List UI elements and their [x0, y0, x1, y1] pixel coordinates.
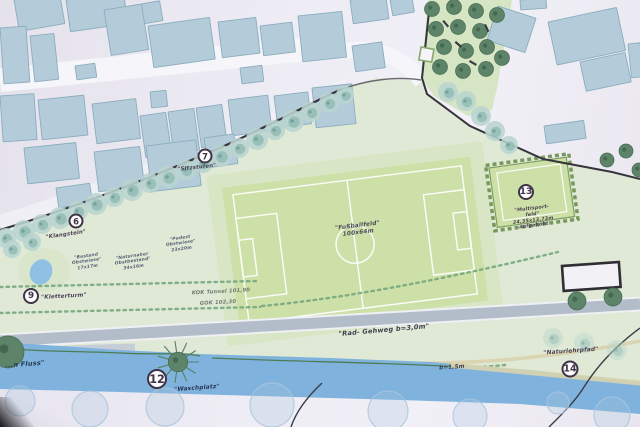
- label-kok-tunnel-line: KOK Tunnel 101,90: [192, 287, 251, 296]
- label-waschplatz: "Waschplatz": [174, 384, 220, 394]
- label-klangstein-line: "Klangstein": [45, 229, 86, 241]
- site-plan-photo: 679121314"Klangstein""Sitzstufen""Klette…: [0, 0, 640, 427]
- label-obstwiese-2: "NaturnaherObstbestand"34x16m: [114, 252, 152, 273]
- label-kletterturm: "Kletterturm": [41, 292, 87, 301]
- label-waschplatz-line: "Waschplatz": [174, 384, 220, 394]
- label-kletterturm-line: "Kletterturm": [41, 292, 87, 301]
- label-naturlehrpfad: "Naturlehrpfad": [543, 347, 599, 358]
- label-obstwiese-3: "PodestObstwiese"23x20m: [165, 234, 197, 254]
- marker-9: 9: [23, 288, 39, 304]
- label-gok: GOK 102,30: [200, 299, 237, 307]
- labels-overlay: 679121314"Klangstein""Sitzstufen""Klette…: [0, 0, 640, 427]
- marker-12: 12: [147, 369, 167, 389]
- marker-14: 14: [562, 361, 579, 378]
- label-fluss: ...n Fluss": [5, 360, 45, 371]
- label-kok-tunnel: KOK Tunnel 101,90: [192, 287, 251, 296]
- label-naturlehrpfad-line: "Naturlehrpfad": [543, 347, 599, 358]
- label-b15-line: b=1,5m: [439, 364, 465, 372]
- label-multisportfeld: "Multisport-feld"24,35x13,73maufgehöht: [511, 204, 554, 232]
- marker-13: 13: [518, 184, 534, 200]
- marker-7: 7: [198, 149, 213, 164]
- label-rad-gehweg: "Rad- Gehweg b=3,0m": [338, 323, 429, 339]
- label-rad-gehweg-line: "Rad- Gehweg b=3,0m": [338, 323, 429, 339]
- label-sitzstufen: "Sitzstufen": [177, 163, 216, 174]
- marker-6: 6: [69, 214, 84, 229]
- label-fluss-line: ...n Fluss": [5, 360, 45, 371]
- label-klangstein: "Klangstein": [45, 229, 86, 241]
- label-sitzstufen-line: "Sitzstufen": [177, 163, 216, 174]
- label-b15: b=1,5m: [439, 364, 465, 372]
- label-gok-line: GOK 102,30: [200, 299, 237, 307]
- label-obstwiese-1: "BestandObstwiese"17x17m: [71, 252, 103, 272]
- label-fussballfeld: "Fußballfeld"100x64m: [335, 220, 381, 239]
